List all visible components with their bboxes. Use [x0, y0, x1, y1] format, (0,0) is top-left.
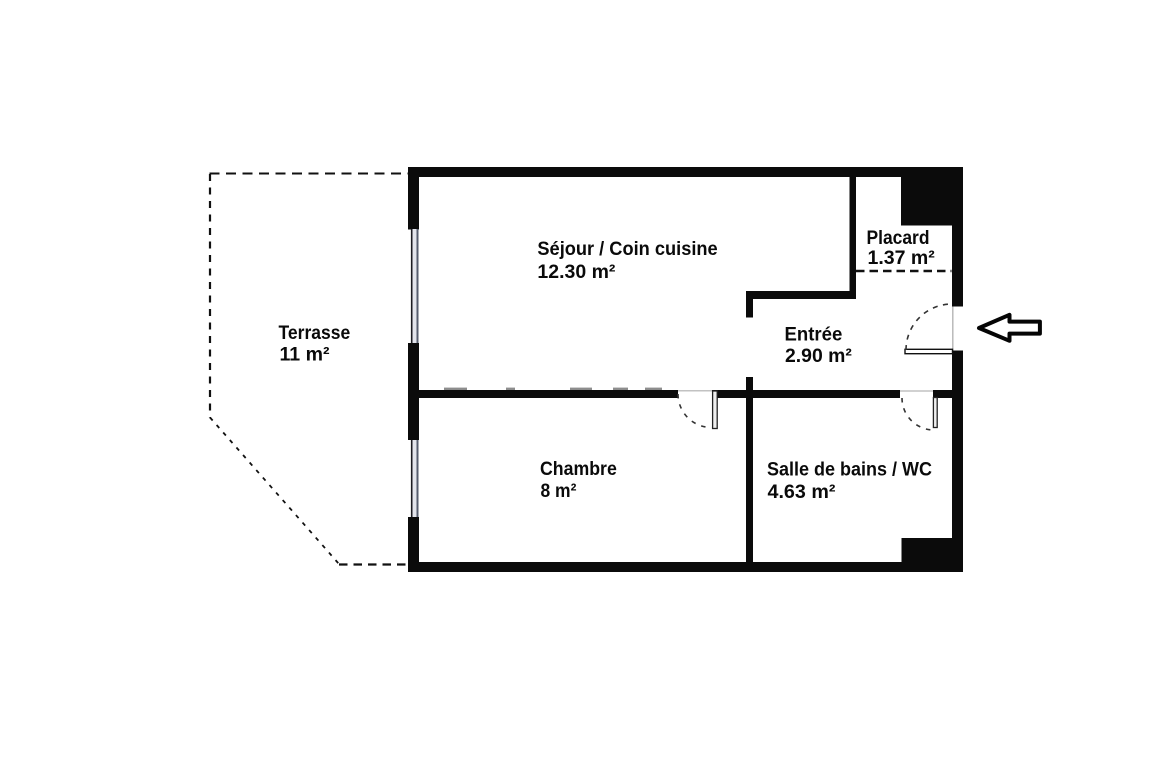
svg-text:Terrasse: Terrasse	[279, 322, 351, 344]
svg-text:1.37 m²: 1.37 m²	[868, 247, 936, 269]
svg-text:Chambre: Chambre	[540, 458, 617, 480]
svg-text:Salle de bains / WC: Salle de bains / WC	[767, 459, 932, 481]
svg-text:4.63 m²: 4.63 m²	[768, 481, 836, 503]
svg-text:Séjour / Coin cuisine: Séjour / Coin cuisine	[537, 238, 717, 260]
svg-text:Placard: Placard	[867, 227, 930, 249]
svg-text:12.30 m²: 12.30 m²	[537, 261, 615, 283]
svg-text:8 m²: 8 m²	[541, 480, 577, 502]
svg-text:Entrée: Entrée	[785, 323, 843, 345]
svg-text:2.90 m²: 2.90 m²	[785, 345, 852, 367]
svg-text:11 m²: 11 m²	[280, 343, 330, 365]
